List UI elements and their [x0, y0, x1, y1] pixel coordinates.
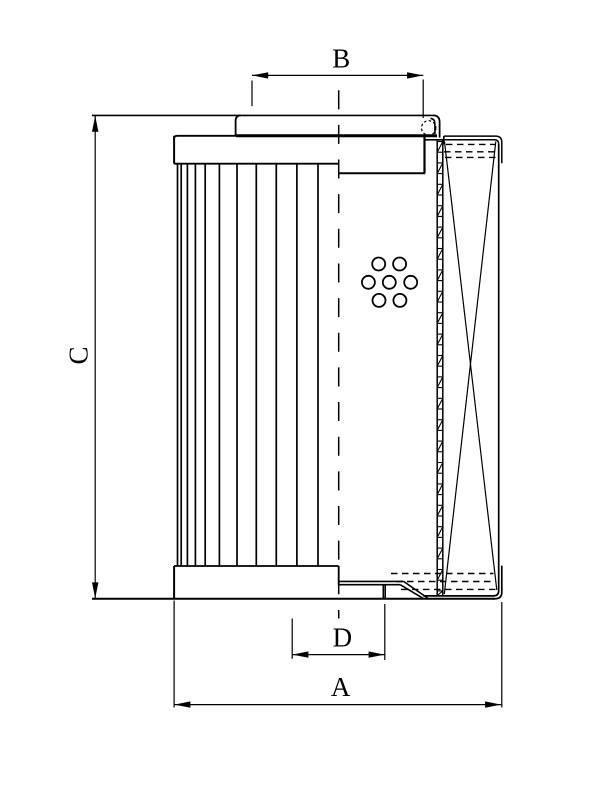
- svg-text:B: B: [332, 44, 350, 74]
- svg-text:A: A: [331, 672, 351, 702]
- svg-text:D: D: [333, 622, 353, 652]
- svg-text:C: C: [64, 346, 94, 364]
